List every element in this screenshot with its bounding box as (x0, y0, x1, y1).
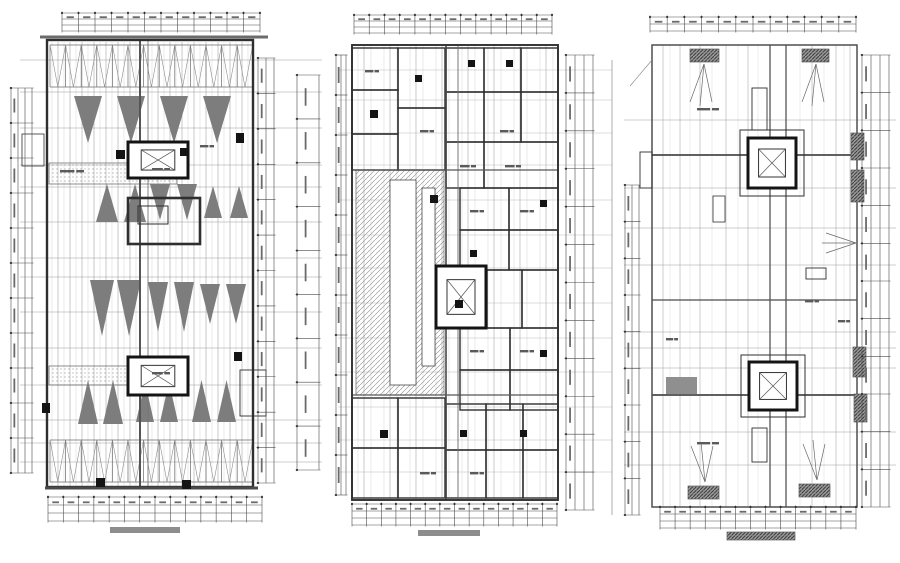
plan-typical-floor (334, 8, 620, 553)
drawing-sheet (0, 0, 900, 563)
plan-structural-framing-svg (8, 8, 334, 556)
plan-roof-svg (620, 12, 898, 548)
plan-typical-floor-svg (334, 8, 620, 553)
plan-roof (620, 12, 898, 548)
plan-structural-framing (8, 8, 334, 556)
